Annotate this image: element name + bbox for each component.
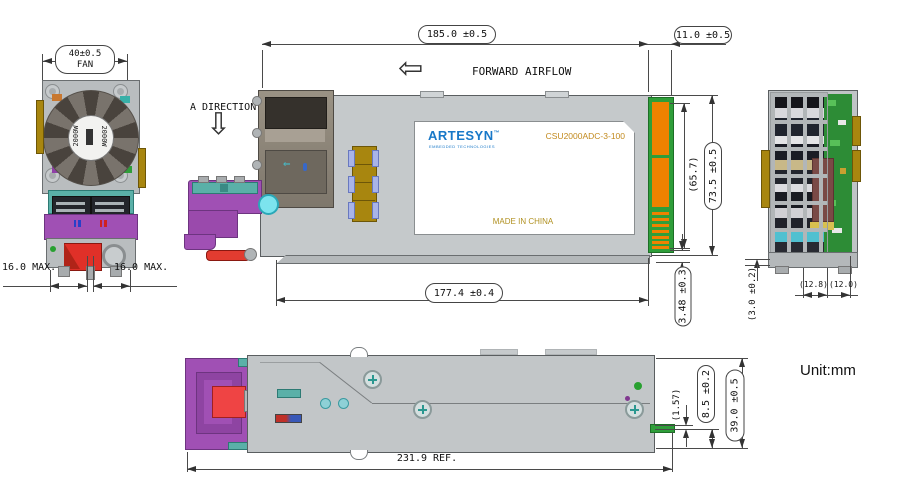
edge-height-dim-callout: 8.5 ±0.2	[697, 365, 715, 423]
dim-line	[93, 286, 177, 287]
chassis-length-dim-callout: 177.4 ±0.4	[425, 283, 503, 303]
led-indicator	[634, 382, 642, 390]
card-edge-finger	[652, 218, 669, 221]
dim-line	[684, 103, 685, 248]
edge-bump	[350, 347, 368, 357]
rear-pcb-part	[838, 120, 846, 125]
fan-housing-bar	[265, 129, 325, 142]
dim-arrow	[818, 292, 827, 298]
dim-extension-line	[652, 255, 718, 256]
capacitor-clip	[348, 202, 355, 219]
edge-marking	[480, 349, 518, 355]
lever-hinge	[244, 248, 257, 261]
rear-foot	[775, 266, 789, 274]
left-hollow-arrow-icon: ⇦	[398, 54, 423, 84]
dim-text-max-right: 16.0 MAX.	[114, 262, 168, 273]
model-number: CSU2000ADC-3-100	[520, 131, 625, 141]
front-purple-band	[44, 214, 138, 240]
bottom-body	[247, 355, 655, 453]
dim-arrow	[276, 297, 285, 303]
handle-hook	[184, 234, 216, 250]
dim-line	[686, 437, 687, 447]
connector-contact	[56, 209, 85, 212]
dim-extension-line	[670, 103, 690, 104]
card-edge-finger	[652, 241, 669, 244]
dim-extension-line	[648, 50, 649, 92]
fan-dimension-callout: 40±0.5 FAN	[55, 45, 115, 74]
fan-power-label: 2000W	[72, 121, 82, 151]
gold-contact-strip	[852, 116, 861, 146]
fan-dim-label: FAN	[77, 60, 93, 71]
panel-seam	[260, 362, 320, 363]
side-screw	[252, 128, 262, 138]
dim-extension-line	[127, 54, 128, 82]
teal-rivet	[338, 398, 349, 409]
dim-extension-line	[648, 258, 649, 306]
fan-power-label: 2000W	[98, 121, 108, 151]
bottom-offset-dim-callout: 3.48 ±0.3	[675, 267, 692, 327]
brand-tagline: EMBEDDED TECHNOLOGIES	[429, 144, 495, 149]
dim-line	[3, 286, 87, 287]
dim-arrow	[663, 466, 672, 472]
mounting-pin	[58, 266, 70, 277]
dim-arrow	[639, 41, 648, 47]
capacitor-clip	[372, 150, 379, 167]
dim-line	[262, 44, 726, 45]
card-edge-finger	[652, 246, 669, 249]
polarity-mark	[104, 220, 107, 227]
width-dim-callout: 39.0 ±0.5	[726, 370, 745, 442]
dim-text-pcb-offset: (1.57)	[672, 388, 682, 422]
dim-extension-line	[656, 448, 748, 449]
rear-grille	[770, 92, 828, 260]
rear-pcb-part	[840, 168, 846, 174]
card-edge-finger	[652, 212, 669, 215]
card-edge-finger	[652, 224, 669, 227]
side-screw	[252, 96, 262, 106]
dim-arrow	[262, 41, 271, 47]
dim-arrow	[118, 58, 127, 64]
gold-contact-strip	[761, 150, 770, 208]
led-indicator	[50, 246, 56, 252]
gold-contact-strip	[852, 150, 861, 182]
dim-arrow	[709, 246, 715, 255]
cyan-button	[258, 194, 279, 215]
dim-arrow	[679, 241, 685, 250]
dim-arrow	[639, 297, 648, 303]
dim-extension-line	[656, 358, 748, 359]
dim-text-rear-right: (12.0)	[829, 280, 858, 289]
length-dim-callout: 185.0 ±0.5	[418, 25, 496, 44]
unit-label: Unit:mm	[800, 362, 856, 379]
dim-extension-line	[672, 432, 673, 472]
dim-arrow	[121, 283, 130, 289]
bottom-flange	[276, 255, 650, 264]
connector-contact	[56, 202, 85, 205]
dim-arrow	[709, 439, 715, 448]
down-hollow-arrow-icon: ⇩	[206, 110, 231, 140]
edge-bump	[350, 450, 368, 460]
brand-text: ARTESYN	[428, 128, 494, 143]
brand-logo: ARTESYN™	[428, 128, 500, 143]
polarity-mark	[74, 220, 76, 227]
phillips-screw	[413, 400, 432, 419]
dim-arrow	[43, 58, 52, 64]
connector-contact	[95, 202, 124, 205]
dim-text-rear-gap: (3.0 ±0.2)	[748, 265, 758, 323]
airflow-mini-icon: ⇐	[283, 160, 291, 170]
bottom-red-latch	[212, 386, 246, 418]
handle-tab	[234, 176, 245, 183]
capacitor-clip	[372, 202, 379, 219]
fan-dim-value: 40±0.5	[69, 49, 102, 60]
dim-arrow	[93, 283, 102, 289]
airflow-label: FORWARD AIRFLOW	[472, 65, 571, 78]
purple-dot	[625, 396, 630, 401]
teal-rivet	[320, 398, 331, 409]
dim-text-max-left: 16.0 MAX.	[2, 262, 56, 273]
dim-text-total-length: 231.9 REF.	[385, 453, 469, 464]
card-edge-finger	[652, 236, 669, 239]
dim-arrow	[709, 429, 715, 438]
gold-contact-strip	[36, 100, 44, 154]
handle-tab	[198, 176, 209, 183]
card-edge-pad	[652, 158, 669, 207]
dim-arrow	[50, 283, 59, 289]
fan-hub-logo	[86, 129, 93, 145]
connector-contact	[95, 209, 124, 212]
dim-arrow	[739, 439, 745, 448]
polarity-mark	[100, 220, 102, 227]
dim-arrow	[841, 292, 850, 298]
mechanical-drawing: 40±0.5 FAN 2000W 2000W 16.0 MAX. 16.0 MA…	[0, 0, 900, 499]
top-edge-tab	[420, 91, 444, 98]
rear-pcb-part	[828, 100, 836, 106]
capacitor-clip	[348, 150, 355, 167]
dim-extension-line	[850, 256, 851, 298]
handle-notch	[220, 184, 228, 192]
phillips-screw	[625, 400, 644, 419]
origin-text: MADE IN CHINA	[463, 217, 583, 226]
dim-line	[187, 469, 672, 470]
dim-extension-line	[130, 270, 131, 292]
dim-arrow	[709, 95, 715, 104]
dim-arrow	[739, 358, 745, 367]
rear-pcb-part	[830, 140, 840, 146]
polarity-mark	[78, 220, 81, 227]
card-edge-finger	[652, 230, 669, 233]
dim-arrow	[683, 417, 689, 426]
card-edge-dim-callout: 11.0 ±0.5	[674, 26, 732, 44]
dim-arrow	[681, 103, 687, 112]
trademark-symbol: ™	[494, 131, 501, 137]
small-label	[277, 389, 301, 398]
edge-marking	[545, 349, 597, 355]
fan-housing-panel	[265, 150, 327, 194]
dim-extension-line	[670, 250, 690, 251]
small-label	[275, 414, 302, 423]
dim-text-rear-left: (12.8)	[799, 280, 828, 289]
dim-arrow	[803, 292, 812, 298]
dim-arrow	[187, 466, 196, 472]
dim-extension-line	[87, 256, 88, 292]
dim-extension-line	[650, 95, 718, 96]
dim-text-pad-height: (65.7)	[689, 155, 700, 195]
capacitor-clip	[372, 176, 379, 193]
capacitor-divider	[353, 200, 375, 201]
top-edge-tab	[545, 91, 569, 98]
label-mini-icon	[303, 163, 307, 171]
dim-arrow	[78, 283, 87, 289]
phillips-screw	[363, 370, 382, 389]
gold-contact-strip	[138, 148, 146, 188]
height-dim-callout: 73.5 ±0.5	[704, 142, 722, 210]
capacitor-clip	[348, 176, 355, 193]
side-screw	[252, 160, 262, 170]
dim-extension-line	[262, 50, 263, 88]
fan-housing-vent	[265, 97, 327, 129]
card-edge-pad	[652, 102, 669, 155]
handle-tab	[216, 176, 227, 183]
dim-extension-line	[671, 50, 672, 95]
